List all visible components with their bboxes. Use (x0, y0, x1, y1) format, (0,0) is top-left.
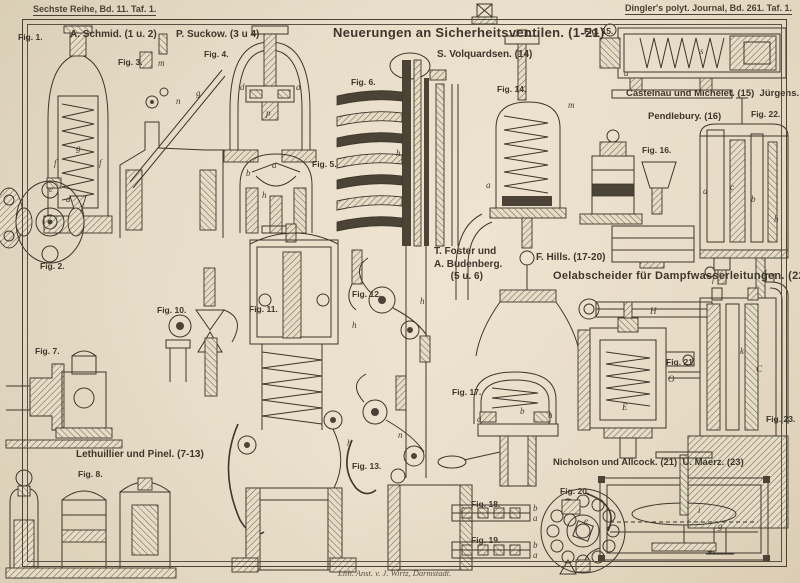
lithographer-credit: Lith. Anst. v. J. Wirtz, Darmstadt. (338, 568, 451, 578)
part-letter: b (246, 168, 251, 179)
part-letter: d (296, 82, 301, 93)
part-letter: d (762, 268, 767, 279)
part-letter: a (272, 160, 277, 171)
part-letter: e (49, 184, 53, 195)
figure-number-label: Fig. 4. (204, 49, 229, 60)
part-letter: C (756, 364, 762, 375)
figure-number-label: Fig. 8. (78, 469, 103, 480)
part-letter: O (668, 374, 675, 385)
figure-number-label: Fig. 14. (497, 84, 526, 95)
figure-number-label: Fig. 15. (584, 26, 613, 37)
figure-number-label: Fig. 2. (40, 261, 65, 272)
part-letter: a (624, 68, 629, 79)
inventor-label: F. Hills. (17-20) (536, 252, 605, 265)
figure-number-label: Fig. 12. (352, 289, 381, 300)
inventor-label: S. Volquardsen. (14) (437, 49, 532, 62)
part-letter: H (650, 306, 657, 317)
part-letter: i (698, 505, 701, 516)
figure-number-label: Fig. 6. (351, 77, 376, 88)
figure-number-label: Fig. 23. (766, 414, 795, 425)
part-letter: m (158, 58, 165, 69)
part-letter: a (486, 180, 491, 191)
part-letter: c (730, 182, 734, 193)
figure-number-label: Fig. 18. (471, 499, 500, 510)
part-letter: m (568, 100, 575, 111)
plate-frame-inner (27, 24, 782, 562)
figure-number-label: Fig. 3. (118, 57, 143, 68)
inventor-label: Nicholson und Allcock. (21) U. Maerz. (2… (553, 457, 744, 469)
part-letter: e (584, 516, 588, 527)
part-letter: k (740, 346, 744, 357)
part-letter: p (266, 108, 271, 119)
figure-number-label: Fig. 17. (452, 387, 481, 398)
part-letter: h (347, 438, 352, 449)
part-letter: f (54, 158, 57, 169)
figure-number-label: Fig. 7. (35, 346, 60, 357)
figure-number-label: Fig. 1. (18, 32, 43, 43)
plate-page: { "plate": { "margin": { "series_label":… (0, 0, 800, 583)
figure-number-label: Fig. 21. (666, 357, 695, 368)
part-letter: E (622, 402, 628, 413)
part-letter: g (718, 521, 723, 532)
part-letter: n (176, 96, 181, 107)
part-letter: h (548, 410, 553, 421)
inventor-label: T. Foster und A. Budenberg. (5 u. 6) (434, 246, 502, 284)
part-letter: a (533, 550, 538, 561)
part-letter: h (420, 296, 425, 307)
figure-number-label: Fig. 19. (471, 535, 500, 546)
part-letter: b (520, 406, 525, 417)
inventor-label: Pendlebury. (16) (648, 111, 721, 123)
part-letter: f (99, 158, 102, 169)
part-letter: d (240, 82, 245, 93)
part-letter: g (196, 88, 201, 99)
part-letter: s (700, 46, 704, 57)
inventor-label: Lethuillier und Pinel. (7-13) (76, 449, 204, 462)
series-header: Sechste Reihe, Bd. 11. Taf. 1. (33, 4, 156, 16)
part-letter: h (396, 148, 401, 159)
figure-number-label: Fig. 10. (157, 305, 186, 316)
section-title: Neuerungen an Sicherheitsventilen. (1-21… (333, 25, 605, 41)
part-letter: h (352, 320, 357, 331)
journal-header: Dingler's polyt. Journal, Bd. 261. Taf. … (625, 3, 792, 15)
figure-number-label: Fig. 16. (642, 145, 671, 156)
part-letter: h (774, 214, 779, 225)
part-letter: b (751, 194, 756, 205)
part-letter: d (66, 194, 71, 205)
inventor-label: A. Schmid. (1 u. 2) (70, 29, 157, 42)
part-letter: a (477, 414, 482, 425)
part-letter: a (703, 186, 708, 197)
part-letter: f (712, 274, 715, 285)
inventor-label: P. Suckow. (3 u 4) (176, 29, 259, 42)
figure-number-label: Fig. 20. (560, 486, 589, 497)
part-letter: a (533, 513, 538, 524)
part-letter: h (262, 190, 267, 201)
inventor-label: Castelnau und Michelet. (15) Jürgens. (2… (626, 88, 800, 100)
figure-number-label: Fig. 5. (312, 159, 337, 170)
figure-number-label: Fig. 22. (751, 109, 780, 120)
part-letter: g (76, 143, 81, 154)
part-letter: n (398, 430, 403, 441)
figure-number-label: Fig. 13. (352, 461, 381, 472)
figure-number-label: Fig. 11. (249, 304, 278, 315)
